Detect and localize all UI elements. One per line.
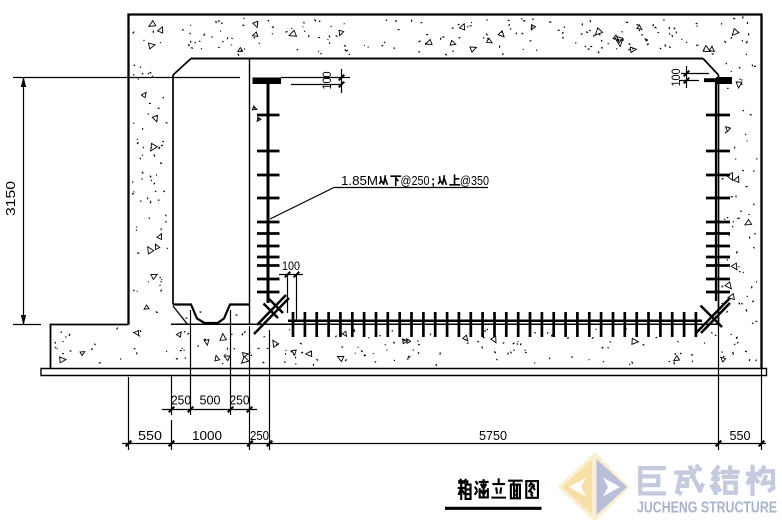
svg-text:500: 500 xyxy=(200,394,221,408)
svg-text:100: 100 xyxy=(282,261,300,273)
svg-text:250: 250 xyxy=(250,428,269,443)
svg-text:@350: @350 xyxy=(460,173,489,188)
svg-text:550: 550 xyxy=(138,428,162,443)
svg-text:1.85M: 1.85M xyxy=(341,173,378,188)
svg-text:250: 250 xyxy=(230,394,250,408)
svg-text:;: ; xyxy=(431,173,435,188)
svg-text:@250: @250 xyxy=(401,173,430,188)
svg-text:100: 100 xyxy=(322,72,334,90)
svg-text:100: 100 xyxy=(671,69,683,87)
svg-text:250: 250 xyxy=(171,394,191,408)
svg-text:550: 550 xyxy=(730,428,751,443)
svg-text:JUCHENG STRUCTURE: JUCHENG STRUCTURE xyxy=(637,500,777,517)
svg-text:5750: 5750 xyxy=(479,428,507,443)
svg-text:1000: 1000 xyxy=(192,428,222,443)
svg-text:3150: 3150 xyxy=(3,181,18,216)
